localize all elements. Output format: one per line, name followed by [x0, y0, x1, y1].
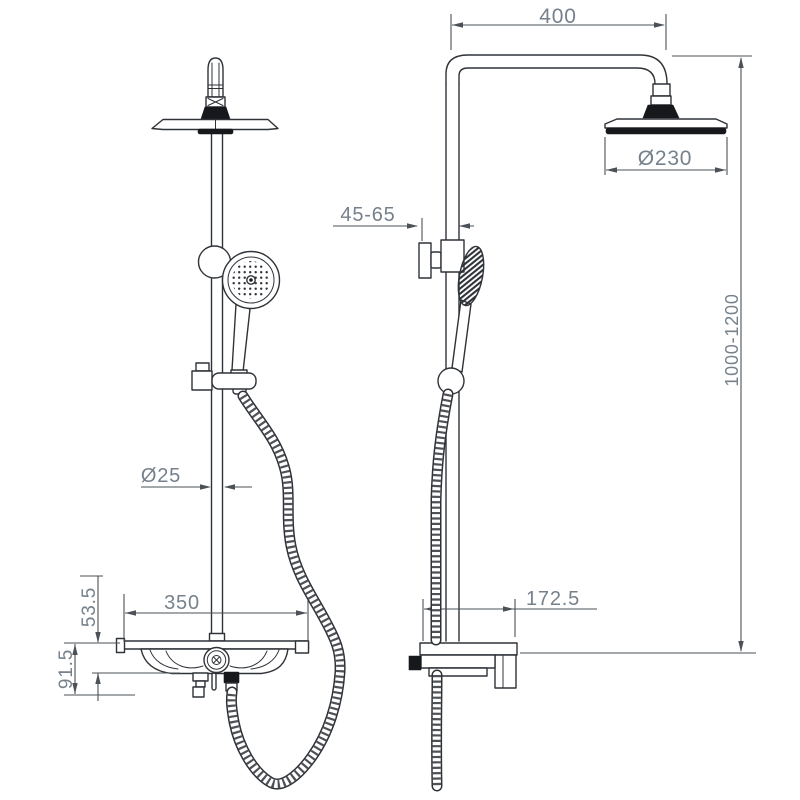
- front-hose-outlet: [224, 672, 239, 683]
- dim-label-shelf-width: 350: [164, 592, 200, 614]
- side-ball-joint: [643, 105, 679, 118]
- side-control-knob: [409, 656, 421, 670]
- dim-label-height-range: 1000-1200: [722, 293, 742, 386]
- side-mount-bracket: [495, 655, 516, 688]
- dim-label-arm-width: 400: [539, 5, 576, 28]
- dim-label-pipe-diameter: Ø25: [141, 465, 181, 487]
- side-rain-head: [605, 119, 727, 134]
- dim-label-tray-height: 53.5: [79, 587, 100, 627]
- side-wall-plate: [419, 243, 431, 278]
- shower-column-technical-drawing: 400 Ø230 45-65 1000-1200 172.5: [0, 0, 800, 800]
- dim-label-body-height: 91.5: [56, 649, 77, 689]
- dim-label-head-diameter: Ø230: [638, 147, 693, 170]
- side-wall-bracket: [419, 240, 464, 278]
- dim-label-bracket-range: 45-65: [340, 204, 395, 226]
- dim-label-shelf-depth: 172.5: [526, 588, 580, 610]
- front-ball-joint: [201, 107, 230, 119]
- front-diverter-rod: [212, 673, 216, 690]
